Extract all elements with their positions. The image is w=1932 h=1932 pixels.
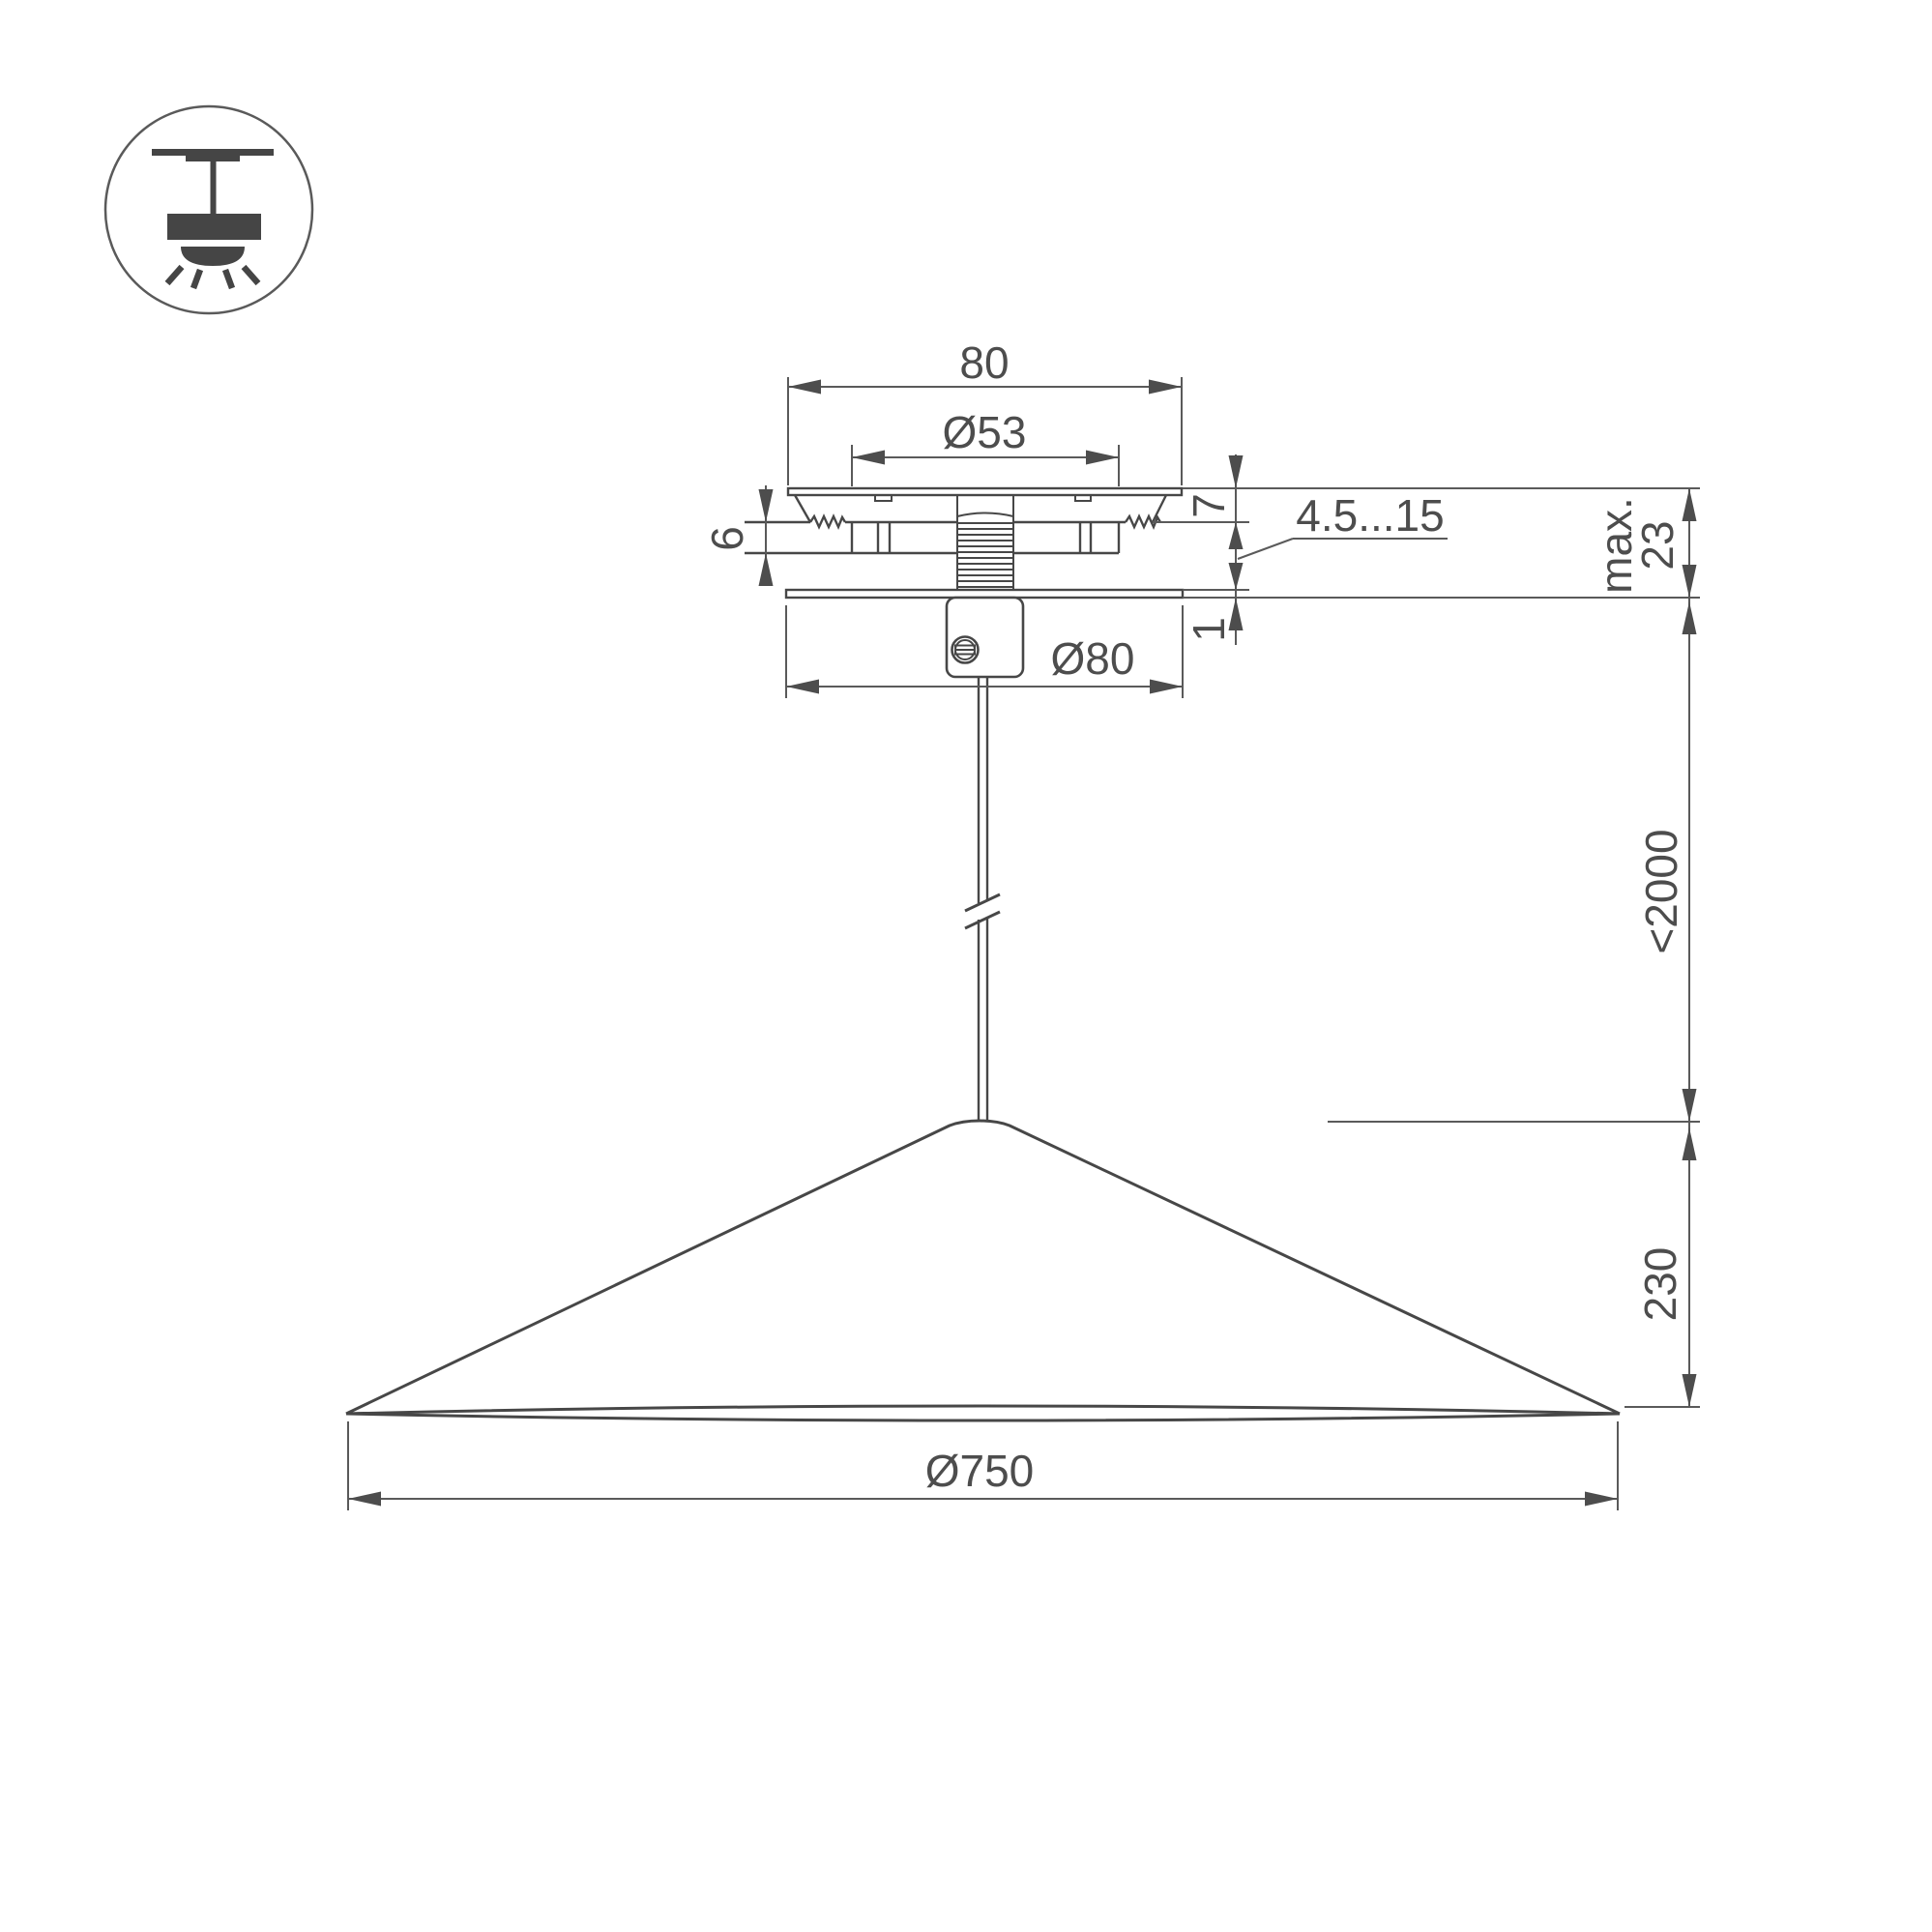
cable-grip-box bbox=[947, 598, 1023, 677]
ceiling-pendant-light-icon bbox=[152, 149, 274, 288]
clamp-bracket bbox=[745, 495, 1166, 553]
technical-drawing-svg: 80 Ø53 6 bbox=[0, 0, 1932, 1932]
cable-break-slash bbox=[965, 894, 1000, 911]
dim-label-2000: <2000 bbox=[1636, 829, 1686, 953]
lamp-shade-cone bbox=[346, 1121, 1620, 1420]
dim-label-o80: Ø80 bbox=[1051, 633, 1135, 684]
suspension-cable bbox=[965, 677, 1000, 1122]
dim-label-1: 1 bbox=[1184, 617, 1234, 642]
dimension-hole-diameter: Ø53 bbox=[852, 407, 1119, 486]
dim-label-6: 6 bbox=[702, 526, 752, 551]
dimension-bracket-height: 6 bbox=[702, 485, 774, 586]
dim-label-23: 23 bbox=[1632, 520, 1683, 570]
dimension-shade-diameter: Ø750 bbox=[348, 1421, 1618, 1510]
cable-break-slash bbox=[965, 912, 1000, 928]
threaded-stud bbox=[957, 495, 1013, 590]
locking-screw-icon bbox=[952, 637, 979, 663]
dimension-stack-right: 7 1 4.5...15 bbox=[1153, 454, 1448, 645]
dim-label-o53: Ø53 bbox=[943, 407, 1027, 457]
dim-label-7: 7 bbox=[1184, 493, 1234, 518]
badge-circle bbox=[105, 106, 312, 313]
dim-label-clamp-range: 4.5...15 bbox=[1296, 490, 1444, 541]
drawing-page: 80 Ø53 6 bbox=[0, 0, 1932, 1932]
light-rays-icon bbox=[167, 267, 258, 288]
dim-label-80: 80 bbox=[959, 337, 1009, 388]
dim-label-230: 230 bbox=[1635, 1247, 1685, 1322]
dim-label-o750: Ø750 bbox=[925, 1446, 1035, 1496]
canopy-plate bbox=[788, 488, 1182, 501]
spring-zigzag-left bbox=[810, 516, 845, 527]
mount-type-badge bbox=[105, 106, 312, 313]
